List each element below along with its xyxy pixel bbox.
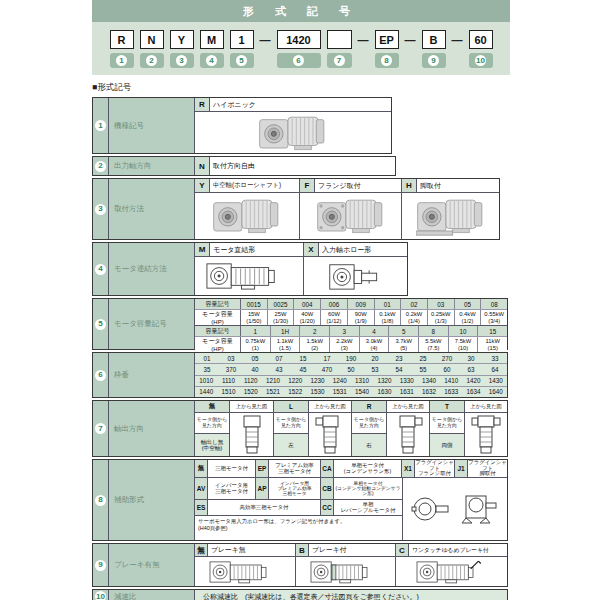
code-symbol: N (195, 157, 210, 175)
code-symbol: Y (195, 179, 210, 192)
row-number-cell: 10 (93, 590, 109, 600)
code-unit-2: N 2 (140, 30, 164, 68)
code-desc: 単相モータ付 (コンデンサラン形) (334, 460, 402, 477)
plugin-shaft-foot-drawing (460, 493, 500, 525)
row-number-cell: 5 (93, 299, 109, 349)
code-desc: モータ直結形 (210, 243, 303, 256)
circled-number: 6 (293, 55, 304, 66)
circled-number: 1 (95, 120, 106, 131)
code-marker: 8 (375, 53, 399, 68)
circled-number: 9 (95, 560, 106, 571)
circled-number: 10 (475, 55, 486, 66)
code-box: M (200, 30, 224, 49)
circled-number: 3 (95, 204, 106, 215)
code-symbol: H (402, 179, 417, 192)
coupling-direct: M モータ直結形 (195, 243, 303, 295)
row-number-cell: 8 (93, 460, 109, 540)
aux-row-a: 無 三相モータ付 EP プレミアム効率 三相モータ付 CA 単相モータ付 (コン… (195, 460, 507, 478)
catalog-page: 形 式 記 号 R 1 N 2 Y 3 M 4 (0, 0, 600, 600)
row-reduction-ratio: 10 減速比 公称減速比 (実減速比は、各選定表／寸法図頁をご参照ください。) (92, 589, 508, 600)
code-symbol: CB (321, 478, 334, 499)
code-dash: — (405, 30, 416, 49)
servo-note: サーボモータ用入力ホロー形は、フランジ記号が付きます。 (H40頁参照) (195, 516, 402, 540)
row-label: モータ容量記号 (109, 299, 195, 349)
code-symbol: M (195, 243, 210, 256)
direction-label: モータ側から 見た方向 (430, 413, 464, 434)
row-label: 出力軸方向 (109, 157, 195, 175)
code-symbol: T (430, 401, 465, 412)
frame-number-line: 1010111011201210122012301240131013201330… (195, 375, 507, 386)
code-unit-10: 60 10 (469, 30, 493, 68)
shaft-group-both: T 上から見た図 モータ側から 見た方向 両側 (429, 401, 507, 456)
brake-onetouch-release: C ワンタッチゆるめブレーキ付 (395, 544, 507, 586)
code-marker: 2 (140, 53, 164, 68)
frame-number-table: 0103050715171902023252703033 35370404345… (195, 353, 507, 397)
direct-coupling-drawing (195, 257, 303, 295)
top-view-label: 上から見た図 (309, 401, 351, 412)
plugin-shaft-drawings (402, 478, 507, 540)
capacity-symbol-row-small: 容量記号 001500250040060090102030508 (195, 299, 507, 309)
circled-number: 8 (381, 55, 392, 66)
circled-number: 4 (95, 264, 106, 275)
row-number-cell: 1 (93, 98, 109, 153)
code-symbol: EP (256, 460, 269, 477)
code-dash: — (260, 30, 271, 49)
capacity-values-large: 0.75kW (1)1.1kW (1.5)1.5kW (2)2.2kW (3)3… (241, 337, 507, 352)
code-box: R (110, 30, 134, 49)
row-label: 軸出方向 (109, 401, 195, 456)
mount-flange: F フランジ取付 (299, 179, 401, 239)
code-unit-9: B 9 (422, 30, 446, 68)
direction-value: 両側 (430, 434, 464, 456)
row-motor-coupling: 4 モータ連結方法 M モータ直結形 X 入力軸ホロー形 (92, 242, 408, 296)
code-box: N (140, 30, 164, 49)
code-desc: 三相モータ付 (208, 460, 256, 477)
code-desc: 単相 レバーシブルモータ付 (334, 500, 402, 515)
code-marker: 1 (110, 53, 134, 68)
code-marker: 6 (277, 53, 321, 68)
direction-value: 軸出し無 (中空軸) (195, 434, 229, 456)
aux-row-c: ES 高効率三相モータ付 CC 単相 レバーシブルモータ付 (195, 500, 402, 516)
circled-number: 6 (95, 370, 106, 381)
shaft-group-left: L 上から見た図 モータ側から 見た方向 左 (273, 401, 351, 456)
code-marker: 9 (422, 53, 446, 68)
capacity-values-small: 15W (1/50)25W (1/30)40W (1/20)60W (1/12)… (241, 310, 507, 325)
brake-none: 無 ブレーキ無 (195, 544, 295, 586)
foot-mount-photo (402, 193, 499, 239)
frame-number-line: 0103050715171902023252703033 (195, 353, 507, 363)
code-symbol: ES (195, 500, 208, 515)
capacity-header: モータ容量 (HP) (195, 310, 241, 325)
code-symbol: 無 (195, 544, 208, 556)
mount-hollow-shaft: Y 中空軸(ホローシャフト) (195, 179, 299, 239)
code-symbol: CC (321, 500, 334, 515)
code-box: Y (170, 30, 194, 49)
capacity-symbols-large: 11H234581015 (241, 326, 507, 336)
code-unit-3: Y 3 (170, 30, 194, 68)
model-code-boxes: R 1 N 2 Y 3 M 4 1 5 — (92, 22, 510, 68)
capacity-symbol-row-large: 容量記号 11H234581015 (195, 325, 507, 336)
capacity-header: 容量記号 (195, 326, 241, 336)
code-marker: 3 (170, 53, 194, 68)
code-symbol: AP (256, 478, 269, 499)
code-marker: 5 (230, 53, 254, 68)
code-box: 1420 (277, 30, 321, 49)
direction-label: モータ側から 見た方向 (352, 413, 386, 434)
row-label: モータ連結方法 (109, 243, 195, 295)
code-symbol: CA (321, 460, 334, 477)
row-label: 枠番 (109, 353, 195, 397)
capacity-value-row-small: モータ容量 (HP) 15W (1/50)25W (1/30)40W (1/20… (195, 309, 507, 325)
code-symbol: AV (195, 478, 208, 499)
hollow-shaft-photo (195, 193, 299, 239)
code-symbol: F (300, 179, 315, 192)
row-label: 補助形式 (109, 460, 195, 540)
circled-number: 7 (334, 55, 345, 66)
brake-equipped-drawing (296, 557, 395, 586)
circled-number: 7 (95, 423, 106, 434)
code-unit-4: M 4 (200, 30, 224, 68)
row-frame-number: 6 枠番 0103050715171902023252703033 353704… (92, 352, 508, 398)
capacity-header: モータ容量 (HP) (195, 337, 241, 352)
shaft-diagram-none (230, 413, 273, 456)
circled-number: 4 (206, 55, 217, 66)
code-desc: プレミアム効率 三相モータ付 (269, 460, 321, 477)
code-box: 60 (469, 30, 493, 49)
top-view-label: 上から見た図 (230, 401, 273, 412)
flange-mount-photo (300, 193, 401, 239)
code-unit-7: 7 (327, 30, 352, 68)
code-desc: 取付方向自由 (210, 157, 395, 175)
top-view-label: 上から見た図 (465, 401, 507, 412)
row-output-shaft: 2 出力軸方向 N 取付方向自由 (92, 156, 396, 176)
direction-label: モータ側から 見た方向 (195, 413, 229, 434)
code-desc: インバータ用 プレミアム効率 三相モータ (269, 478, 321, 499)
code-desc: ワンタッチゆるめブレーキ付 (409, 544, 507, 556)
shaft-group-right: R 上から見た図 モータ側から 見た方向 右 (351, 401, 429, 456)
code-desc: ブレーキ付 (309, 544, 395, 556)
row-label: 減速比 (109, 590, 195, 600)
code-unit-5: 1 5 (230, 30, 254, 68)
frame-number-line: 3537040434547050535455606364 (195, 363, 507, 374)
shaft-group-none: 無 上から見た図 モータ側から 見た方向 軸出し無 (中空軸) (195, 401, 273, 456)
shaft-diagram-left (309, 413, 351, 456)
code-desc: ブレーキ無 (208, 544, 295, 556)
row-number-cell: 7 (93, 401, 109, 456)
code-desc: ハイポニック (210, 98, 391, 111)
code-desc: プラグインシャフト 脚取付 (468, 460, 507, 477)
model-code-banner: 形 式 記 号 R 1 N 2 Y 3 M 4 (92, 0, 510, 75)
code-symbol: B (296, 544, 309, 556)
row-shaft-direction: 7 軸出方向 無 上から見た図 モータ側から 見た方向 軸出し無 (中空軸) (92, 400, 508, 457)
code-box: EP (375, 30, 399, 49)
mount-foot: H 脚取付 (401, 179, 499, 239)
capacity-tables: 容量記号 001500250040060090102030508 モータ容量 (… (195, 299, 507, 349)
row-number-cell: 6 (93, 353, 109, 397)
top-view-label: 上から見た図 (387, 401, 429, 412)
circled-number: 10 (95, 591, 106, 600)
direction-value: 右 (352, 434, 386, 456)
circled-number: 5 (236, 55, 247, 66)
capacity-symbols-small: 001500250040060090102030508 (241, 299, 507, 309)
code-symbol: X (304, 243, 319, 256)
capacity-header: 容量記号 (195, 299, 241, 309)
brake-none-drawing (195, 557, 295, 586)
row-label: ブレーキ有無 (109, 544, 195, 586)
code-symbol: 無 (195, 401, 230, 412)
code-symbol: R (195, 98, 210, 111)
code-symbol: L (274, 401, 309, 412)
aux-row-b: AV インバータ用 三相モータ付 AP インバータ用 プレミアム効率 三相モータ… (195, 478, 402, 500)
code-desc: 中空軸(ホローシャフト) (210, 179, 299, 192)
row-brake: 9 ブレーキ有無 無 ブレーキ無 B ブレーキ付 (92, 543, 508, 587)
coupling-hollow-input: X 入力軸ホロー形 (303, 243, 407, 295)
code-desc: 高効率三相モータ付 (208, 500, 321, 515)
auxiliary-grid: 無 三相モータ付 EP プレミアム効率 三相モータ付 CA 単相モータ付 (コン… (195, 460, 507, 540)
shaft-diagram-right (387, 413, 429, 456)
code-symbol: J1 (455, 460, 468, 477)
code-desc: 単相モータ付 (コンデンサ始動コンデンサラン形) (334, 478, 402, 499)
plugin-shaft-flange-drawing (410, 494, 454, 524)
code-marker: 7 (327, 53, 352, 68)
circled-number: 2 (146, 55, 157, 66)
circled-number: 5 (95, 319, 106, 330)
code-box: 1 (230, 30, 254, 49)
row-label: 取付方法 (109, 179, 195, 239)
banner-title: 形 式 記 号 (92, 0, 510, 22)
code-box-blank (327, 30, 352, 49)
row-label: 機種記号 (109, 98, 195, 153)
brake-equipped: B ブレーキ付 (295, 544, 395, 586)
direction-value: 左 (274, 434, 308, 456)
code-symbol: C (396, 544, 409, 556)
code-dash: — (452, 30, 463, 49)
code-desc: 入力軸ホロー形 (319, 243, 407, 256)
code-desc: フランジ取付 (315, 179, 401, 192)
code-unit-6: 1420 6 (277, 30, 321, 68)
circled-number: 9 (428, 55, 439, 66)
shaft-diagram-both (465, 413, 507, 456)
direction-label: モータ側から 見た方向 (274, 413, 308, 434)
code-unit-8: EP 8 (375, 30, 399, 68)
circled-number: 1 (116, 55, 127, 66)
section-title: ■形式記号 (92, 82, 510, 94)
row-number-cell: 4 (93, 243, 109, 295)
row-number-cell: 2 (93, 157, 109, 175)
hyponic-motor-photo (195, 112, 391, 153)
code-unit-1: R 1 (110, 30, 134, 68)
row-mounting: 3 取付方法 Y 中空軸(ホローシャフト) F フランジ取付 (92, 178, 500, 240)
circled-number: 3 (176, 55, 187, 66)
row-number-cell: 3 (93, 179, 109, 239)
code-box: B (422, 30, 446, 49)
code-marker: 10 (469, 53, 493, 68)
code-dash: — (358, 30, 369, 49)
brake-release-drawing (396, 557, 507, 586)
row-auxiliary-type: 8 補助形式 無 三相モータ付 EP プレミアム効率 三相モータ付 CA 単相モ… (92, 459, 508, 541)
row-motor-capacity: 5 モータ容量記号 容量記号 0015002500400600901020305… (92, 298, 508, 350)
circled-number: 8 (95, 495, 106, 506)
circled-number: 2 (95, 161, 106, 172)
capacity-value-row-large: モータ容量 (HP) 0.75kW (1)1.1kW (1.5)1.5kW (2… (195, 336, 507, 352)
row-number-cell: 9 (93, 544, 109, 586)
code-desc: 脚取付 (417, 179, 499, 192)
code-symbol: X1 (402, 460, 415, 477)
code-desc: プラグインシャフト フランジ取付 (415, 460, 455, 477)
model-type-cell: R ハイポニック (195, 98, 391, 153)
code-marker: 4 (200, 53, 224, 68)
code-symbol: 無 (195, 460, 208, 477)
code-desc: インバータ用 三相モータ付 (208, 478, 256, 499)
reduction-ratio-text: 公称減速比 (実減速比は、各選定表／寸法図頁をご参照ください。) (195, 590, 507, 600)
code-symbol: R (352, 401, 387, 412)
frame-number-line: 1440151015201521152215301531154016301631… (195, 386, 507, 397)
row-model-type: 1 機種記号 R ハイポニック (92, 97, 392, 154)
hollow-input-drawing (304, 257, 407, 295)
